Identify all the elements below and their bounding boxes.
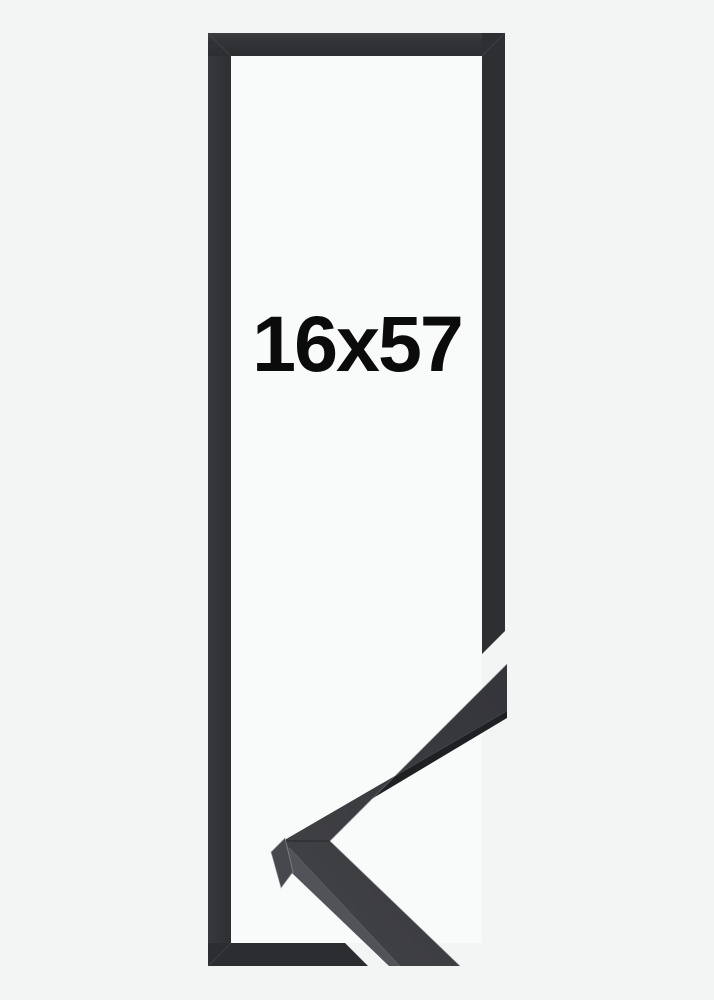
- frame-illustration: [0, 0, 714, 1000]
- product-photo: 16x57: [0, 0, 714, 1000]
- size-label: 16x57: [0, 304, 714, 384]
- frame-bottom-bar: [208, 943, 368, 966]
- frame-top-bar: [208, 33, 505, 56]
- frame-left-bar: [208, 33, 231, 966]
